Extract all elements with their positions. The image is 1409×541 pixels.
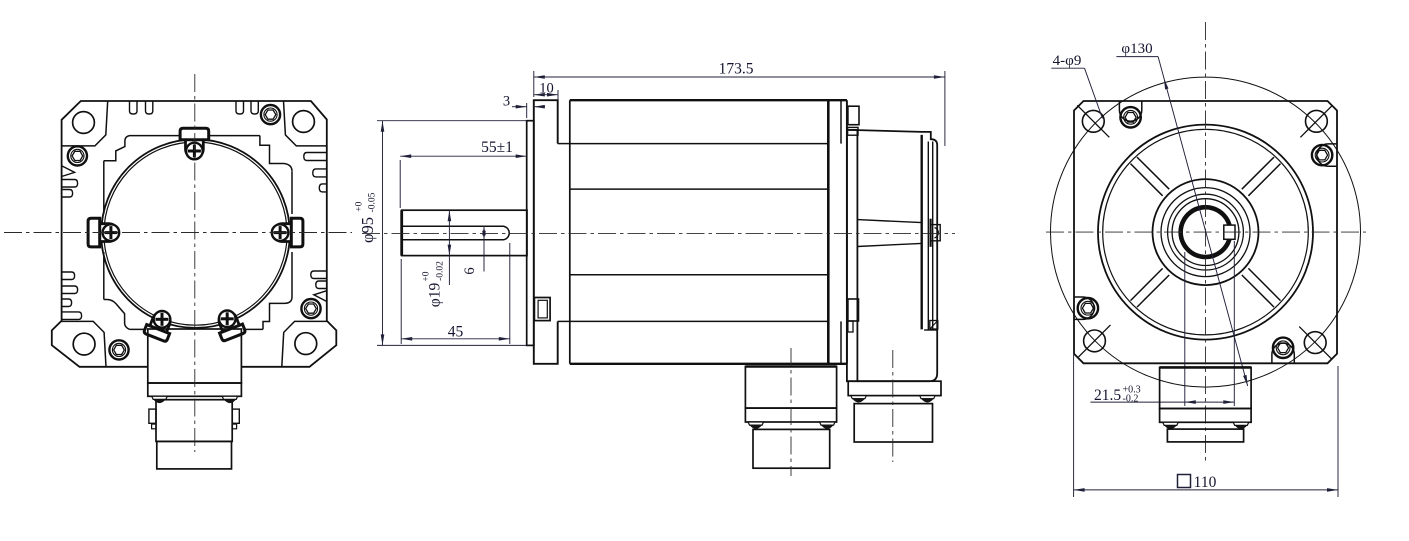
svg-text:φ95: φ95 xyxy=(358,217,377,243)
svg-text:+0: +0 xyxy=(354,201,364,211)
svg-text:21.5: 21.5 xyxy=(1094,387,1121,404)
svg-text:+0: +0 xyxy=(422,271,432,281)
svg-text:-0.2: -0.2 xyxy=(1123,394,1139,405)
svg-text:φ19: φ19 xyxy=(427,283,444,308)
svg-text:-0.05: -0.05 xyxy=(367,192,377,212)
svg-text:45: 45 xyxy=(448,324,464,341)
svg-text:110: 110 xyxy=(1194,474,1217,491)
svg-text:10: 10 xyxy=(539,81,554,97)
svg-text:6: 6 xyxy=(462,267,478,274)
svg-text:55±1: 55±1 xyxy=(481,139,513,156)
svg-text:173.5: 173.5 xyxy=(719,61,754,78)
svg-text:-0.02: -0.02 xyxy=(436,261,446,281)
svg-text:φ130: φ130 xyxy=(1121,41,1152,57)
svg-text:3: 3 xyxy=(503,94,510,110)
svg-text:4-φ9: 4-φ9 xyxy=(1053,53,1082,69)
